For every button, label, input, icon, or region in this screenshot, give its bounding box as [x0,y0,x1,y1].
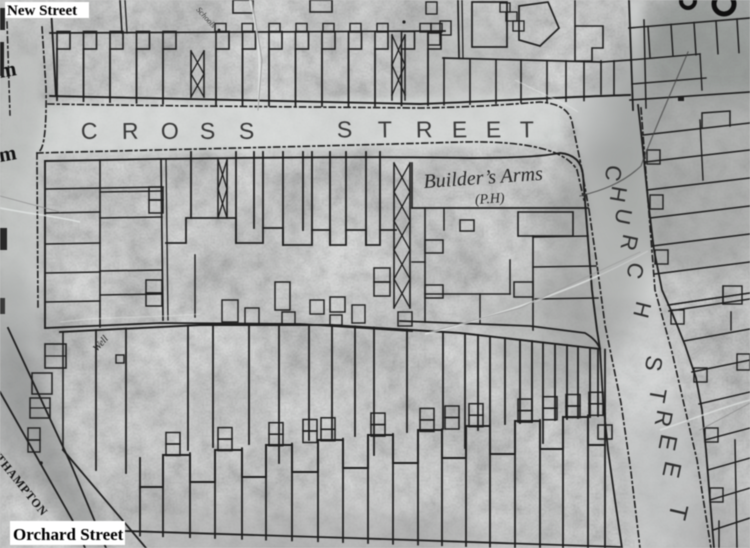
svg-text:S: S [200,118,216,144]
svg-text:(P.H): (P.H) [474,191,505,208]
svg-text:R: R [416,116,433,142]
svg-text:O: O [161,118,179,144]
svg-text:S: S [239,118,255,144]
svg-text:C: C [81,118,98,144]
svg-text:E: E [486,116,502,142]
svg-text:New Street: New Street [7,3,77,19]
svg-text:R: R [122,118,139,144]
svg-text:T: T [378,116,393,142]
svg-text:T: T [520,116,535,142]
svg-text:S: S [337,116,353,142]
svg-text:E: E [452,116,468,142]
svg-text:Orchard Street: Orchard Street [13,525,124,544]
